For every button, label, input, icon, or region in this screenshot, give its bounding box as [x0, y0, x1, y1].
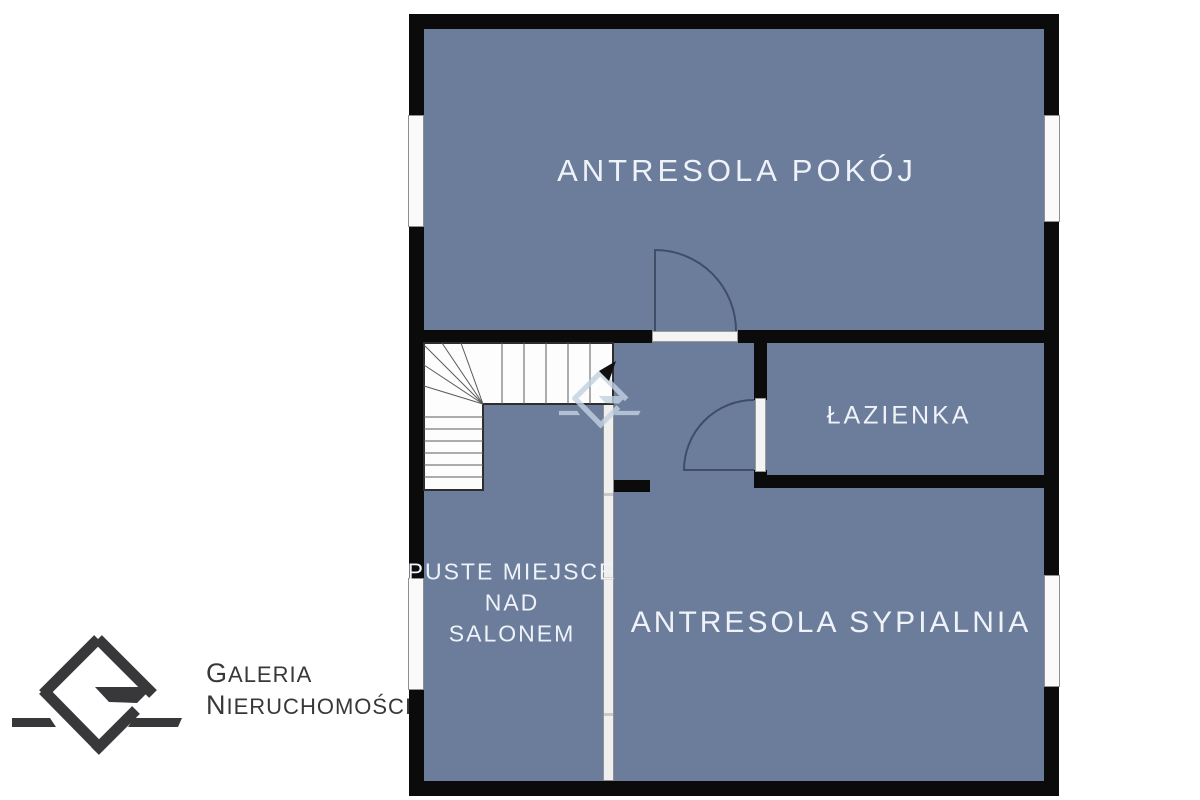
- room-label-lazienka: ŁAZIENKA: [827, 402, 972, 431]
- wall-lazienka-bottom: [754, 475, 1044, 488]
- brand-name: GALERIA NIERUCHOMOŚCI: [206, 660, 412, 720]
- brand-name-line2: NIERUCHOMOŚCI: [206, 692, 412, 720]
- room-label-puste-line3: SALONEM: [408, 619, 617, 650]
- floorplan-canvas: ANTRESOLA POKÓJ ŁAZIENKA PUSTE MIEJSCE N…: [0, 0, 1200, 800]
- wall-lazienka-left-upper: [754, 343, 767, 400]
- window-right-upper-icon: [1044, 115, 1060, 222]
- door-threshold-lazienka: [755, 398, 766, 472]
- brand-name-line1: GALERIA: [206, 660, 412, 688]
- window-right-lower-icon: [1044, 575, 1060, 687]
- room-label-pokoj: ANTRESOLA POKÓJ: [557, 153, 917, 189]
- railing-joint: [604, 713, 613, 716]
- wall-outer-top: [409, 14, 1059, 29]
- brand-logo-icon: [10, 635, 190, 757]
- room-label-puste-line2: NAD: [408, 588, 617, 619]
- room-label-puste-line1: PUSTE MIEJSCE: [408, 557, 617, 588]
- room-label-puste-miejsce: PUSTE MIEJSCE NAD SALONEM: [408, 557, 617, 650]
- wall-outer-bottom: [409, 781, 1059, 796]
- railing-joint: [604, 493, 613, 496]
- wall-pokoj-right: [738, 330, 1044, 343]
- room-label-sypialnia: ANTRESOLA SYPIALNIA: [631, 606, 1031, 640]
- wall-pokoj-left: [424, 330, 652, 343]
- door-threshold-pokoj: [652, 331, 738, 342]
- window-left-upper-icon: [408, 115, 424, 227]
